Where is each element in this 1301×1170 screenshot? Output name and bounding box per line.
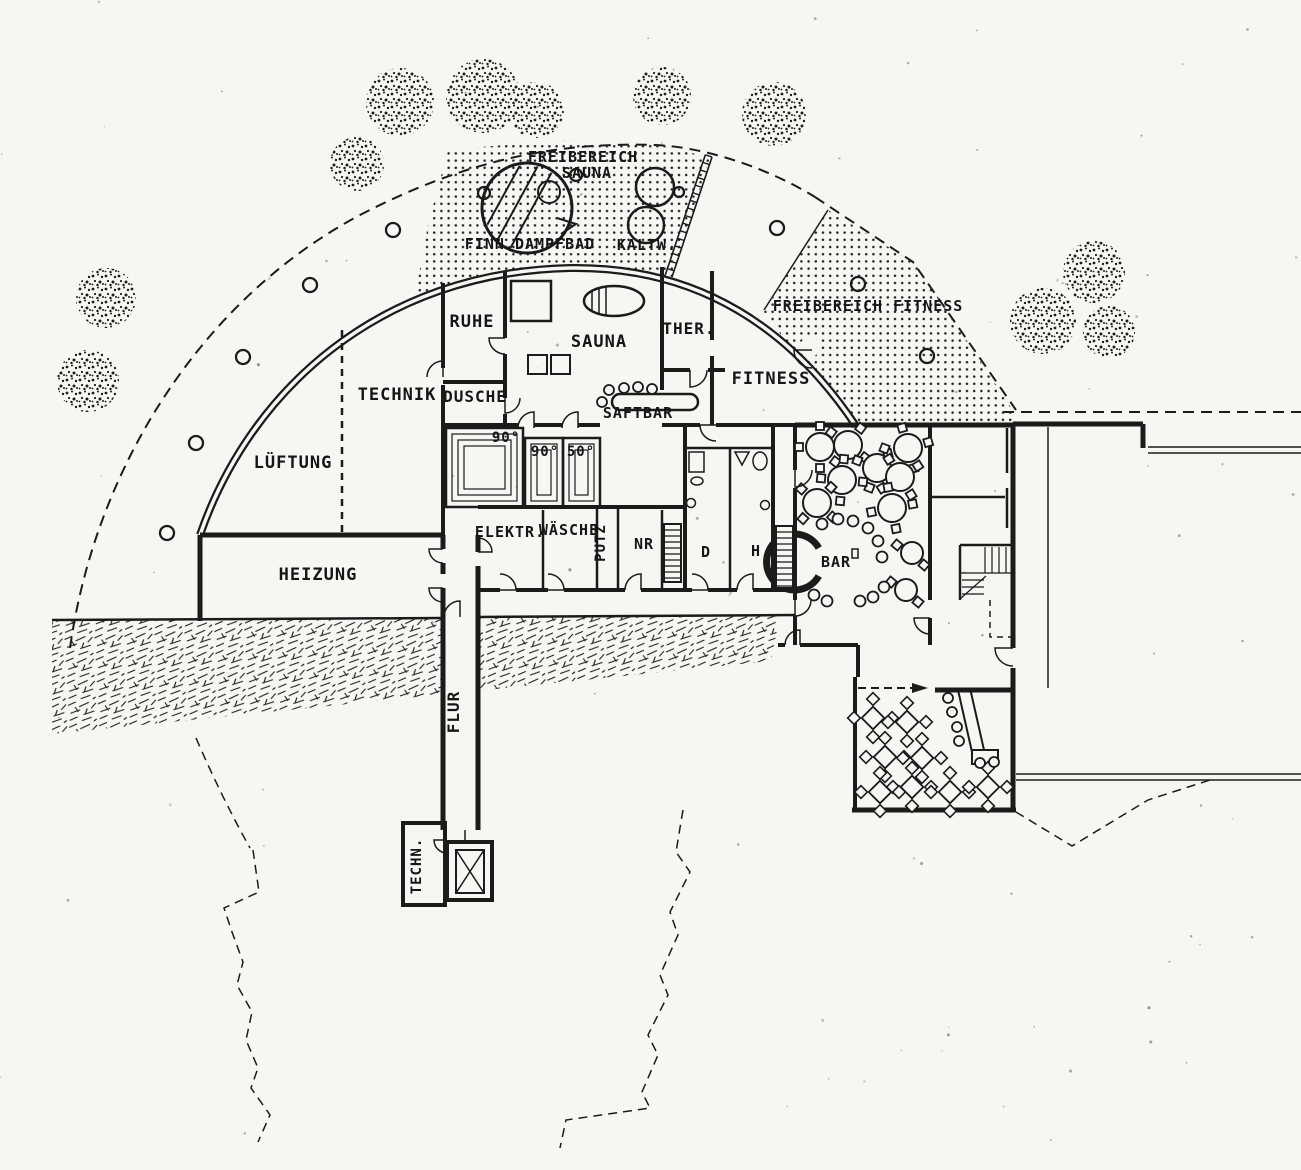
noise-dot xyxy=(1056,279,1059,282)
noise-dot xyxy=(981,634,984,637)
west-link-dashed xyxy=(196,738,250,848)
door-swing xyxy=(625,574,641,590)
noise-dot xyxy=(221,90,223,92)
sauna-stool-1 xyxy=(528,355,547,374)
label-temp-50: 50° xyxy=(567,444,595,460)
stool xyxy=(879,582,890,593)
label-putz: PUTZ xyxy=(593,524,609,562)
elevator xyxy=(447,842,492,900)
noise-dot xyxy=(1246,28,1249,31)
noise-dot xyxy=(1088,388,1090,390)
tree-icon xyxy=(1083,306,1135,358)
noise-dot xyxy=(67,899,70,902)
lounger-oval xyxy=(584,286,644,316)
label-techn: TECHN. xyxy=(409,838,425,895)
door-swing xyxy=(505,398,520,413)
tree-icon xyxy=(57,350,119,412)
column-post xyxy=(189,436,203,450)
label-freibereich-fitness: FREIBEREICH FITNESS xyxy=(773,297,964,315)
noise-dot xyxy=(568,568,571,571)
stool xyxy=(947,707,957,717)
tree-icon xyxy=(1010,288,1076,354)
noise-dot xyxy=(828,1078,829,1079)
noise-dot xyxy=(244,1132,246,1134)
noise-dot xyxy=(696,517,699,520)
label-lueftung: LÜFTUNG xyxy=(254,451,333,473)
earth-hatch xyxy=(52,615,780,734)
noise-dot xyxy=(527,331,529,333)
tables-and-chairs xyxy=(597,382,1013,817)
noise-dot xyxy=(907,62,910,65)
door-swing xyxy=(548,574,564,590)
noise-dot xyxy=(863,1080,865,1082)
noise-dot xyxy=(857,501,859,503)
locker-row xyxy=(776,526,793,588)
column-post xyxy=(303,278,317,292)
noise-dot xyxy=(994,490,996,492)
tree-icon xyxy=(330,137,384,191)
facade-door-gap xyxy=(800,337,820,357)
building-shell xyxy=(200,268,856,535)
east-staircase xyxy=(960,547,1013,637)
stool xyxy=(604,385,614,395)
stool xyxy=(877,552,888,563)
door-swing xyxy=(692,574,708,590)
label-finn-dampfbad: FINN.DAMPFBAD xyxy=(465,235,595,253)
label-ruhe: RUHE xyxy=(450,312,495,332)
stool xyxy=(943,693,953,703)
column-post xyxy=(236,350,250,364)
door-swing xyxy=(562,412,578,428)
tree-icon xyxy=(742,82,806,146)
label-technik: TECHNIK xyxy=(358,385,437,405)
column-post xyxy=(770,221,784,235)
noise-dot xyxy=(1168,961,1170,963)
label-temp-90a: 90° xyxy=(492,430,520,446)
noise-dot xyxy=(661,142,663,144)
tree-icon xyxy=(633,67,691,125)
noise-dot xyxy=(346,260,348,262)
stool xyxy=(954,736,964,746)
door-swing xyxy=(737,574,753,590)
column-post xyxy=(386,223,400,237)
stool xyxy=(619,383,629,393)
noise-dot xyxy=(1062,282,1064,284)
noise-dot xyxy=(722,561,725,564)
noise-dot xyxy=(814,17,817,20)
noise-dot xyxy=(537,367,538,368)
noise-dot xyxy=(1010,893,1012,895)
noise-dot xyxy=(1185,1062,1187,1064)
noise-dot xyxy=(262,789,264,791)
noise-dot xyxy=(948,1026,950,1028)
sauna-stove xyxy=(511,281,551,321)
noise-dot xyxy=(1147,274,1149,276)
label-d: D xyxy=(701,543,711,561)
label-temp-90b: 90° xyxy=(531,444,559,460)
noise-dot xyxy=(821,1019,824,1022)
noise-dot xyxy=(990,322,991,323)
stool xyxy=(809,590,820,601)
door-swing xyxy=(795,600,811,616)
tree-icon xyxy=(76,268,136,328)
label-sauna: SAUNA xyxy=(571,332,627,352)
noise-dot xyxy=(763,409,765,411)
floorplan-svg: FREIBEREICH SAUNA FINN.DAMPFBAD KALTW. F… xyxy=(0,0,1301,1170)
entry-arrow-head xyxy=(912,683,928,693)
noise-dot xyxy=(1200,804,1203,807)
outdoor-fitness-area xyxy=(764,210,1014,424)
noise-dot xyxy=(100,475,102,477)
stool xyxy=(848,516,859,527)
property-zigzag-right xyxy=(560,810,690,1148)
curved-facade-core xyxy=(200,268,856,535)
door-swing xyxy=(785,630,800,645)
noise-dot xyxy=(913,857,915,859)
stool xyxy=(633,382,643,392)
noise-dot xyxy=(1147,465,1149,467)
noise-dot xyxy=(263,845,265,847)
noise-dot xyxy=(947,1033,950,1036)
noise-dot xyxy=(838,157,840,159)
noise-dot xyxy=(1140,135,1142,137)
door-swing xyxy=(700,425,716,441)
label-flur: FLUR xyxy=(444,691,463,734)
stool xyxy=(833,514,844,525)
label-waesche: WÄSCHE xyxy=(539,520,599,539)
sauna-stool-2 xyxy=(551,355,570,374)
noise-dot xyxy=(1295,256,1298,259)
noise-dot xyxy=(1199,944,1201,946)
noise-dot xyxy=(1069,1070,1072,1073)
label-bar: BAR xyxy=(821,553,851,571)
label-kaltw: KALTW. xyxy=(617,236,677,254)
door-swing xyxy=(995,648,1013,666)
terrace-table xyxy=(963,762,1014,813)
noise-dot xyxy=(1221,463,1224,466)
noise-dot xyxy=(169,803,172,806)
noise-dot xyxy=(976,29,978,31)
stool xyxy=(822,596,833,607)
noise-dot xyxy=(1149,1040,1152,1043)
property-zigzag-left xyxy=(224,850,270,1142)
noise-dot xyxy=(1182,63,1184,65)
noise-dot xyxy=(1,153,3,155)
noise-dot xyxy=(976,149,978,151)
noise-dot xyxy=(556,343,559,346)
scanned-floor-plan: FREIBEREICH SAUNA FINN.DAMPFBAD KALTW. F… xyxy=(0,0,1301,1170)
noise-dot xyxy=(325,260,328,263)
label-saftbar: SAFTBAR xyxy=(603,404,673,422)
label-ther: THER. xyxy=(662,319,715,338)
noise-dot xyxy=(104,126,106,128)
noise-dot xyxy=(257,363,260,366)
stool xyxy=(952,722,962,732)
noise-dot xyxy=(948,622,950,624)
noise-dot xyxy=(594,693,596,695)
stool xyxy=(873,536,884,547)
door-swing xyxy=(795,470,812,487)
noise-dot xyxy=(786,1106,788,1108)
stool xyxy=(989,757,999,767)
stool xyxy=(647,384,657,394)
locker-row xyxy=(664,524,681,582)
noise-dot xyxy=(1190,935,1193,938)
noise-dot xyxy=(1050,1139,1052,1141)
stool xyxy=(817,519,828,530)
ground-section xyxy=(52,610,795,742)
noise-dot xyxy=(920,862,923,865)
noise-dot xyxy=(647,37,649,39)
tree-icon xyxy=(1063,241,1125,303)
noise-dot xyxy=(1292,493,1295,496)
label-fitness: FITNESS xyxy=(732,369,811,389)
noise-dot xyxy=(1002,1105,1004,1107)
small-table xyxy=(891,539,929,570)
stool xyxy=(868,592,879,603)
terrace-counter xyxy=(958,688,998,764)
label-elektr: ELEKTR. xyxy=(475,523,545,541)
label-heizung: HEIZUNG xyxy=(279,565,358,585)
noise-dot xyxy=(1147,1006,1150,1009)
noise-dot xyxy=(1178,534,1181,537)
noise-dot xyxy=(728,594,730,596)
stool xyxy=(863,523,874,534)
noise-dot xyxy=(268,277,271,280)
noise-dot xyxy=(1241,640,1243,642)
bar-tap xyxy=(852,549,858,558)
tree-icon xyxy=(446,59,520,133)
noise-dot xyxy=(0,1076,1,1078)
door-swing xyxy=(914,618,930,634)
door-swing xyxy=(690,370,707,387)
stool xyxy=(975,758,985,768)
noise-dot xyxy=(737,843,740,846)
noise-dot xyxy=(1232,818,1234,820)
small-table xyxy=(885,576,923,607)
door-swing xyxy=(518,412,534,428)
noise-dot xyxy=(98,1,101,4)
label-dusche: DUSCHE xyxy=(443,387,507,406)
wc-fixtures xyxy=(687,452,770,510)
tree-icon xyxy=(508,82,564,138)
southeast-boundary-dashed xyxy=(1016,780,1210,846)
noise-dot xyxy=(901,1050,903,1052)
label-h: H xyxy=(751,542,761,560)
door-swing xyxy=(427,361,443,377)
column-post xyxy=(160,526,174,540)
noise-dot xyxy=(1153,653,1155,655)
label-freibereich-sauna-2: SAUNA xyxy=(562,164,612,182)
curved-facade-outer xyxy=(200,268,856,535)
door-swing xyxy=(429,549,443,563)
door-swing xyxy=(489,338,505,354)
noise-dot xyxy=(1251,936,1254,939)
label-nr: NR xyxy=(634,535,654,553)
noise-dot xyxy=(1033,1026,1035,1028)
tree-icon xyxy=(366,68,434,136)
noise-dot xyxy=(1135,315,1138,318)
stool xyxy=(855,596,866,607)
noise-dot xyxy=(941,1050,942,1051)
door-swing xyxy=(500,574,516,590)
noise-dot xyxy=(153,572,154,573)
